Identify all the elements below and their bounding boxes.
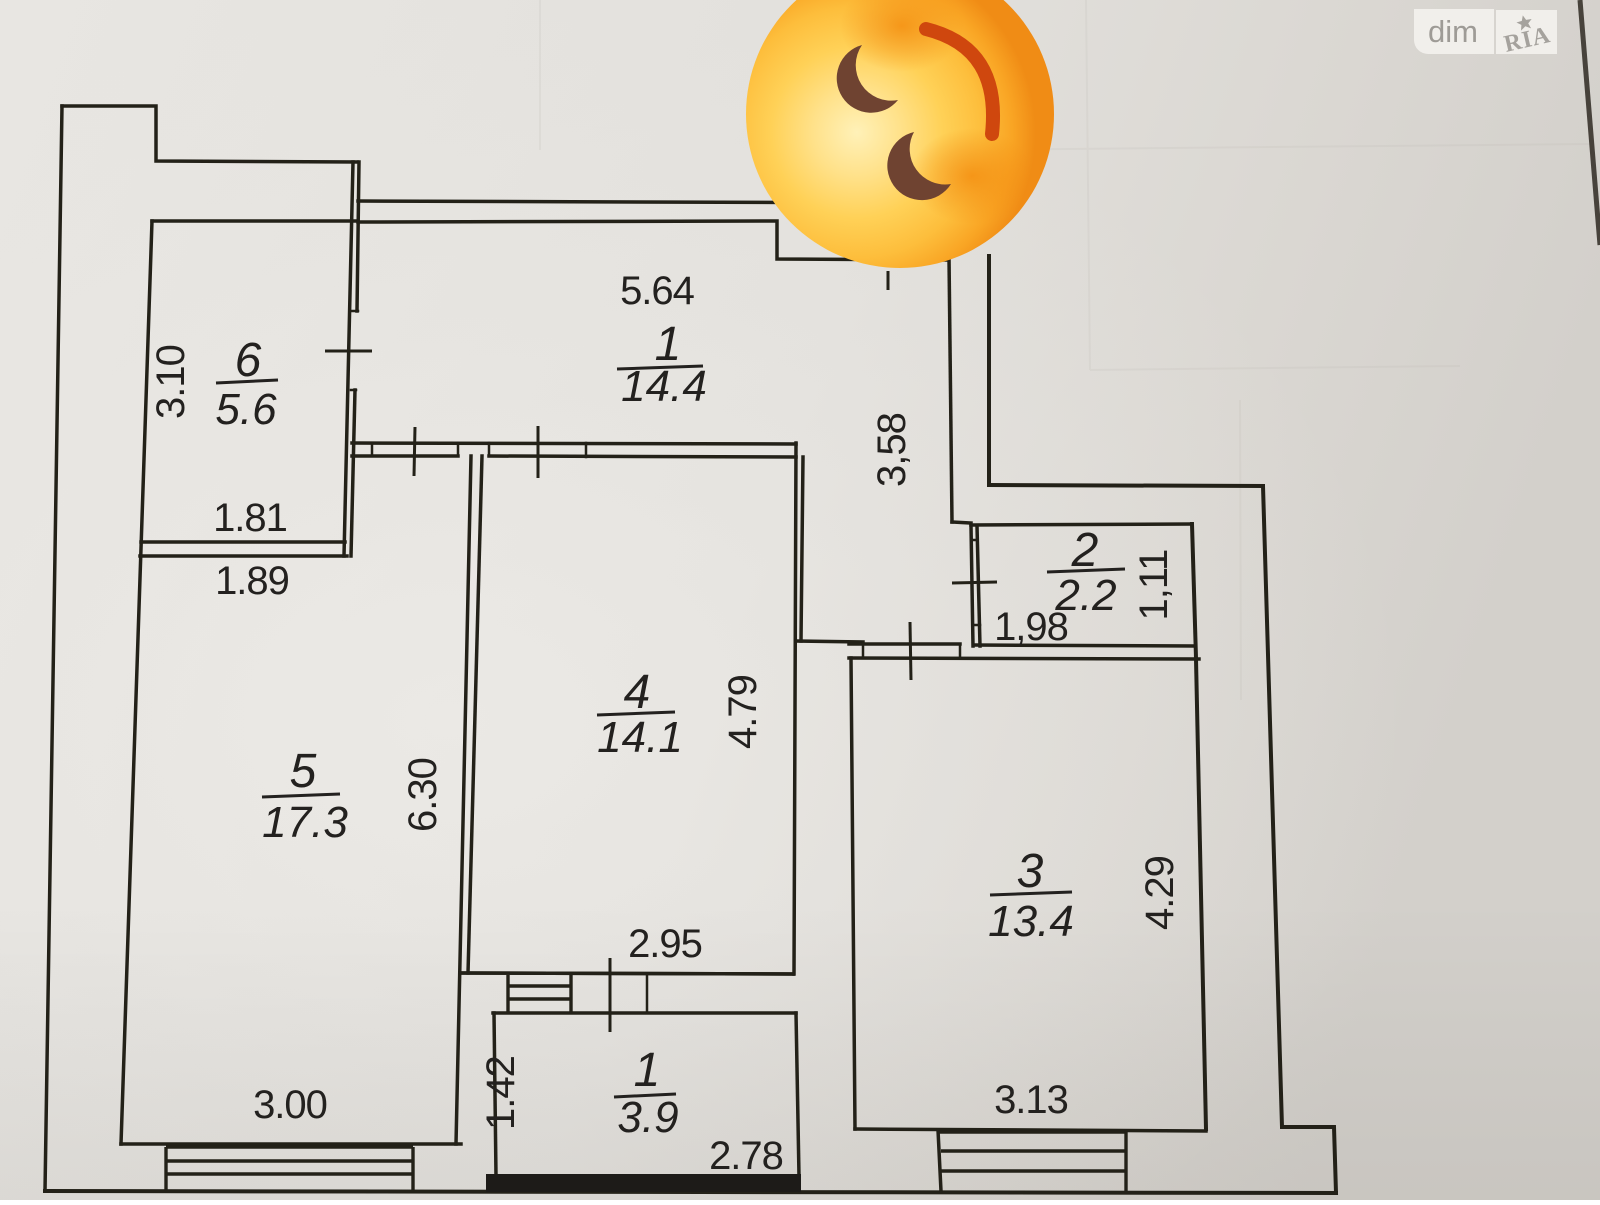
svg-text:3.00: 3.00	[253, 1083, 327, 1127]
svg-text:17.3: 17.3	[262, 798, 348, 847]
svg-text:1.42: 1.42	[479, 1056, 523, 1130]
svg-text:4.79: 4.79	[721, 675, 765, 749]
svg-text:2.78: 2.78	[709, 1134, 783, 1178]
svg-text:5.64: 5.64	[620, 269, 695, 313]
svg-text:dim: dim	[1428, 14, 1478, 49]
svg-text:3: 3	[1017, 845, 1044, 898]
svg-text:3.13: 3.13	[994, 1078, 1068, 1122]
svg-text:4.29: 4.29	[1138, 856, 1182, 930]
svg-text:3,58: 3,58	[870, 413, 914, 487]
svg-text:14.1: 14.1	[597, 713, 683, 762]
svg-text:1.89: 1.89	[215, 559, 289, 603]
svg-text:3.9: 3.9	[617, 1093, 678, 1142]
svg-text:6.30: 6.30	[401, 758, 445, 832]
svg-text:14.4: 14.4	[621, 362, 707, 411]
svg-text:6: 6	[235, 334, 262, 387]
svg-text:1: 1	[634, 1044, 661, 1097]
svg-text:13.4: 13.4	[988, 897, 1074, 946]
svg-text:1.81: 1.81	[213, 496, 287, 540]
svg-text:2.95: 2.95	[628, 922, 702, 966]
svg-text:3.10: 3.10	[149, 345, 193, 419]
svg-text:5: 5	[290, 745, 317, 798]
svg-text:4: 4	[624, 666, 651, 719]
svg-text:1,98: 1,98	[994, 605, 1068, 649]
svg-text:1,11: 1,11	[1132, 550, 1176, 621]
svg-text:5.6: 5.6	[215, 385, 277, 434]
